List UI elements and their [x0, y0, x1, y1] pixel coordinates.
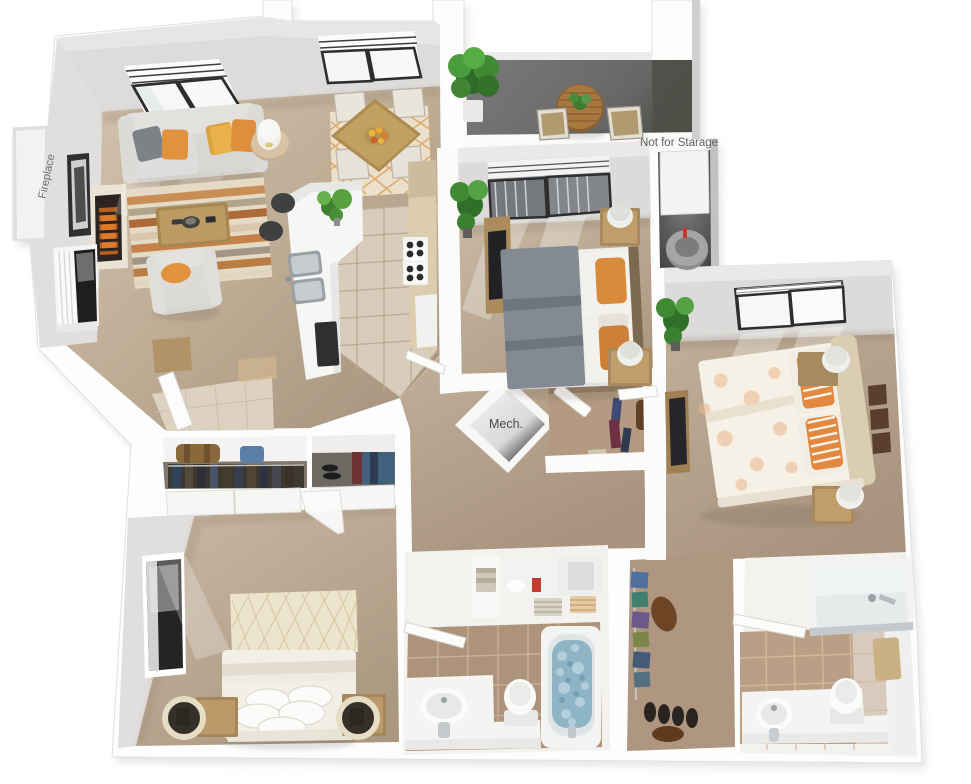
svg-text:Mech.: Mech.	[489, 417, 523, 431]
svg-text:Not for Starage: Not for Starage	[640, 137, 718, 149]
